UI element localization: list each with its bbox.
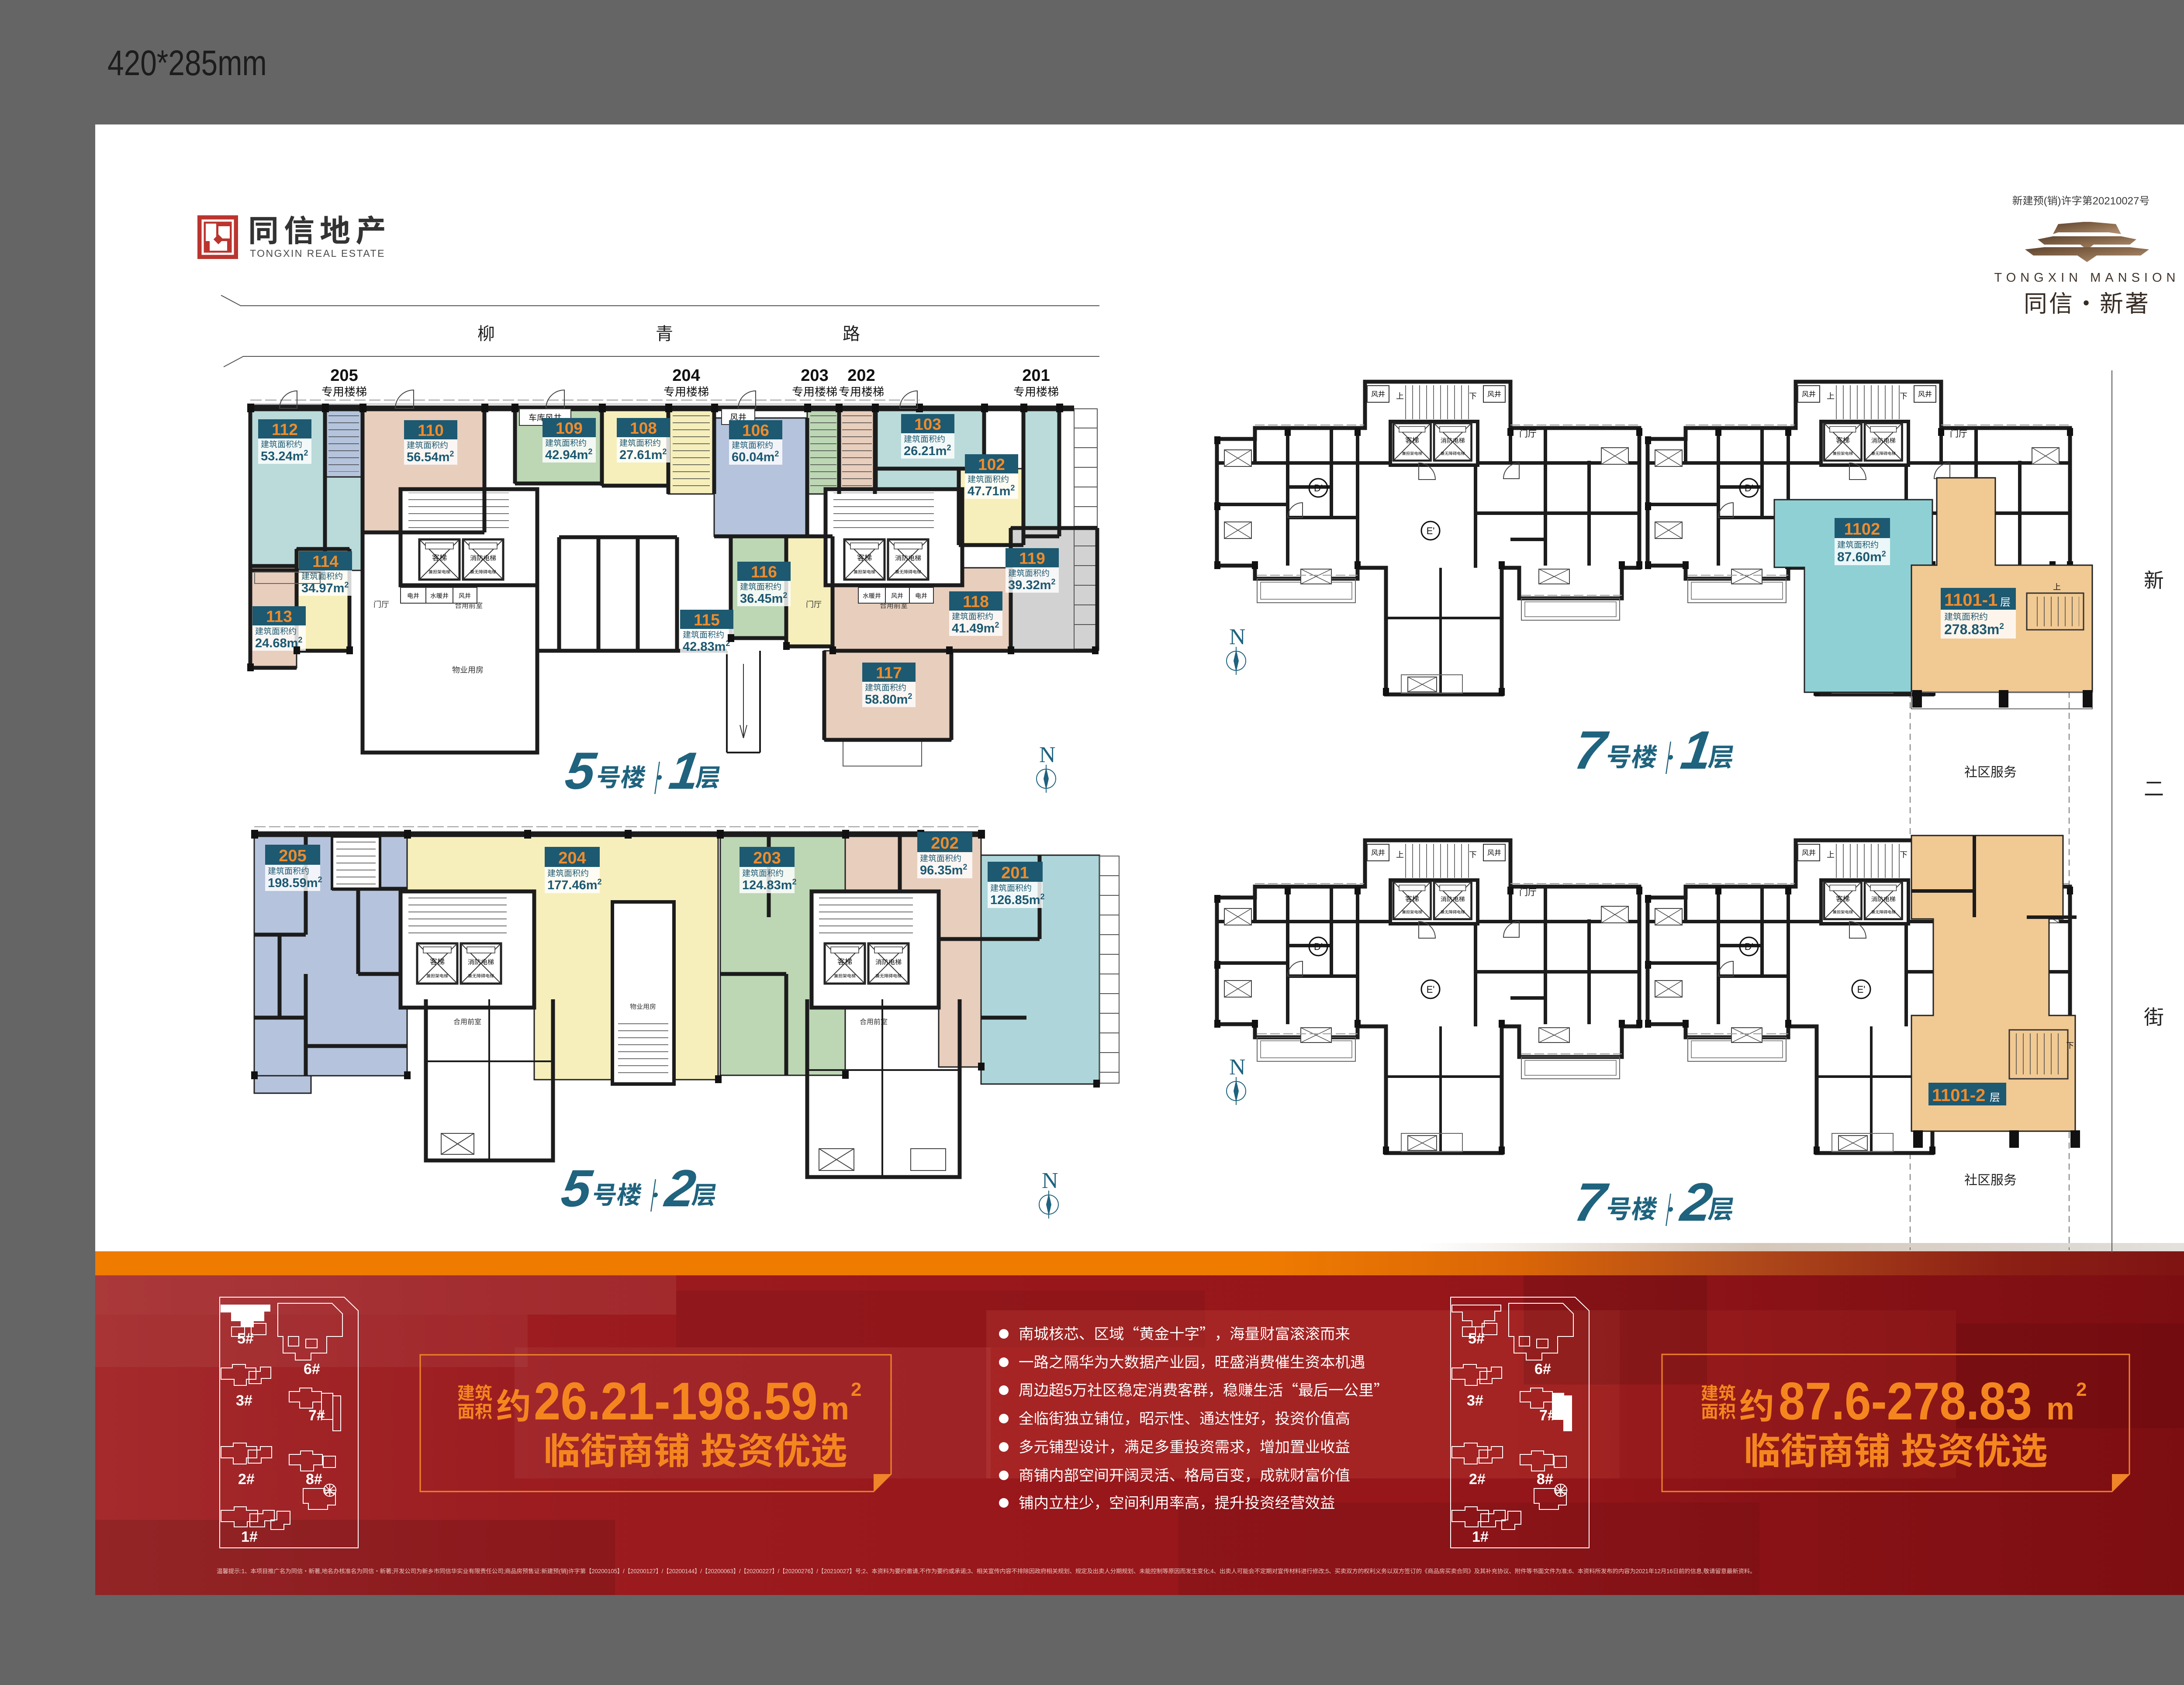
svg-text:,: ,	[918, 1568, 920, 1575]
svg-text:;4: ;4	[1209, 1568, 1214, 1575]
svg-text:41.49m2: 41.49m2	[952, 621, 999, 635]
svg-text:;6: ;6	[1567, 1568, 1572, 1575]
svg-text:42.94m2: 42.94m2	[545, 447, 592, 462]
svg-text:56.54m2: 56.54m2	[407, 449, 454, 464]
svg-text:106: 106	[742, 421, 769, 439]
svg-text:7: 7	[1571, 720, 1612, 780]
svg-text:42.83m2: 42.83m2	[683, 639, 730, 654]
svg-text:114: 114	[312, 552, 339, 570]
svg-text:20200063: 20200063	[708, 1568, 733, 1575]
svg-text:/: /	[816, 1568, 818, 1575]
svg-text:118: 118	[963, 593, 989, 611]
svg-text:12: 12	[1654, 1568, 1661, 1575]
svg-text:102: 102	[978, 456, 1005, 473]
svg-text:TONGXIN REAL ESTATE: TONGXIN REAL ESTATE	[250, 248, 385, 259]
svg-text:2#: 2#	[238, 1471, 255, 1488]
svg-text:278.83m2: 278.83m2	[1944, 622, 2004, 637]
svg-text:8#: 8#	[306, 1471, 322, 1488]
svg-text:108: 108	[630, 419, 657, 437]
svg-text:201: 201	[1001, 864, 1029, 882]
svg-text:1101-1: 1101-1	[1944, 590, 1997, 610]
svg-text:26.21m2: 26.21m2	[904, 443, 951, 458]
svg-text:126.85m2: 126.85m2	[990, 892, 1045, 907]
svg-text:(: (	[2044, 195, 2047, 207]
svg-text:20200144: 20200144	[669, 1568, 695, 1575]
svg-text:7: 7	[1571, 1172, 1612, 1233]
svg-text:2: 2	[851, 1379, 861, 1400]
svg-text:47.71m2: 47.71m2	[968, 483, 1015, 498]
svg-text:5: 5	[1064, 1382, 1072, 1399]
svg-text:20210027: 20210027	[2093, 195, 2139, 207]
svg-text:103: 103	[914, 415, 941, 433]
svg-text:113: 113	[266, 608, 292, 625]
svg-text:203: 203	[801, 366, 828, 385]
svg-text:203: 203	[753, 849, 781, 867]
svg-text:205: 205	[330, 366, 358, 385]
svg-text:m: m	[821, 1392, 849, 1426]
svg-text:1: 1	[666, 742, 703, 800]
svg-text:2021: 2021	[1636, 1568, 1648, 1575]
svg-text:20200127: 20200127	[630, 1568, 656, 1575]
svg-text:119: 119	[1019, 549, 1045, 567]
svg-text:202: 202	[847, 366, 875, 385]
svg-text:7#: 7#	[308, 1407, 325, 1424]
svg-text:5#: 5#	[237, 1330, 254, 1347]
svg-text:,: ,	[1702, 1568, 1704, 1575]
svg-text:2: 2	[1676, 1172, 1716, 1233]
svg-text:7#: 7#	[1539, 1407, 1556, 1424]
svg-text:5#: 5#	[1468, 1330, 1485, 1347]
svg-text:34.97m2: 34.97m2	[301, 580, 349, 595]
svg-text:205: 205	[279, 847, 306, 865]
svg-text:;5: ;5	[1324, 1568, 1329, 1575]
svg-text::: :	[540, 1568, 542, 1575]
svg-text:20210027: 20210027	[824, 1568, 849, 1575]
svg-text:(: (	[559, 1568, 561, 1575]
svg-text:204: 204	[558, 849, 586, 867]
svg-text:;: ;	[391, 1568, 393, 1575]
svg-text:m: m	[2046, 1392, 2074, 1426]
svg-text:36.45m2: 36.45m2	[740, 591, 787, 606]
svg-text:87.60m2: 87.60m2	[1837, 549, 1886, 564]
svg-text:116: 116	[751, 563, 777, 581]
svg-text:,: ,	[320, 1568, 322, 1575]
svg-text:204: 204	[672, 366, 700, 385]
svg-text:1101-2: 1101-2	[1932, 1086, 1985, 1105]
svg-text:6#: 6#	[1534, 1361, 1551, 1378]
svg-text:2: 2	[2076, 1379, 2087, 1400]
svg-text:198.59m2: 198.59m2	[268, 875, 322, 890]
svg-text:202: 202	[931, 834, 958, 853]
svg-text:110: 110	[418, 421, 444, 439]
svg-text:5: 5	[562, 742, 600, 800]
svg-text::1: :1	[240, 1568, 245, 1575]
svg-text:1#: 1#	[1472, 1529, 1489, 1545]
svg-text:1#: 1#	[241, 1529, 258, 1545]
svg-text:;2: ;2	[861, 1568, 866, 1575]
svg-text:/: /	[700, 1568, 702, 1575]
svg-text:20200105: 20200105	[591, 1568, 617, 1575]
svg-text:201: 201	[1022, 366, 1050, 385]
svg-text:;3: ;3	[966, 1568, 971, 1575]
svg-text:TONGXIN MANSION: TONGXIN MANSION	[1994, 271, 2180, 285]
svg-text:/: /	[739, 1568, 741, 1575]
svg-text:1: 1	[1677, 720, 1716, 780]
svg-text:53.24m2: 53.24m2	[261, 449, 308, 463]
svg-text:87.6-278.83: 87.6-278.83	[1779, 1371, 2032, 1431]
svg-text:20200276: 20200276	[785, 1568, 810, 1575]
svg-text:1102: 1102	[1844, 520, 1880, 539]
svg-text:5: 5	[558, 1159, 596, 1218]
svg-text:26.21-198.59: 26.21-198.59	[534, 1371, 818, 1431]
svg-text:6#: 6#	[304, 1361, 320, 1378]
svg-text:96.35m2: 96.35m2	[920, 863, 967, 877]
svg-text:3#: 3#	[1467, 1392, 1483, 1409]
svg-text:): )	[567, 1568, 568, 1575]
svg-text:20200227: 20200227	[746, 1568, 772, 1575]
svg-text:115: 115	[694, 611, 720, 629]
svg-text:;: ;	[503, 1568, 505, 1575]
svg-text:112: 112	[272, 421, 298, 439]
svg-text:/: /	[778, 1568, 780, 1575]
svg-text:60.04m2: 60.04m2	[732, 449, 779, 464]
svg-text:2#: 2#	[1469, 1471, 1486, 1488]
svg-text:177.46m2: 177.46m2	[547, 877, 602, 892]
svg-text:58.80m2: 58.80m2	[865, 692, 912, 707]
svg-text:2: 2	[661, 1159, 699, 1218]
svg-text:/: /	[662, 1568, 663, 1575]
svg-text:39.32m2: 39.32m2	[1008, 577, 1055, 592]
svg-text:16: 16	[1666, 1568, 1673, 1575]
svg-text:/: /	[623, 1568, 625, 1575]
svg-text:8#: 8#	[1537, 1471, 1553, 1488]
svg-text:3#: 3#	[236, 1392, 252, 1409]
svg-text:27.61m2: 27.61m2	[619, 447, 667, 462]
svg-text:): )	[2058, 195, 2061, 207]
svg-text:124.83m2: 124.83m2	[742, 877, 797, 892]
svg-text:109: 109	[556, 419, 583, 437]
svg-text:117: 117	[876, 664, 902, 682]
